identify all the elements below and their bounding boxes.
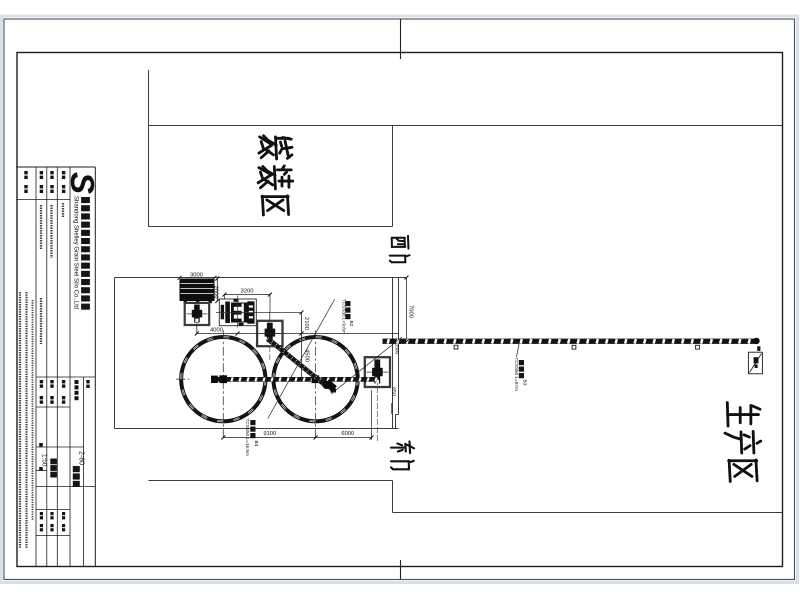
svg-text:TCSS50 L=16.5m: TCSS50 L=16.5m	[245, 419, 250, 456]
svg-text:S: S	[64, 172, 101, 194]
svg-text:TCSS50 L=57m: TCSS50 L=57m	[514, 358, 519, 392]
svg-text:650: 650	[390, 387, 396, 396]
svg-text:2-60: 2-60	[78, 451, 85, 465]
svg-text:B3: B3	[522, 380, 528, 386]
svg-text:B2: B2	[348, 321, 354, 327]
svg-text:3000: 3000	[190, 272, 203, 278]
svg-text:2000: 2000	[213, 286, 219, 299]
svg-text:1:50: 1:50	[41, 454, 48, 467]
svg-text:2100: 2100	[303, 317, 309, 330]
svg-text:7000: 7000	[408, 305, 414, 318]
svg-text:1500: 1500	[394, 344, 399, 355]
svg-text:4500: 4500	[303, 349, 309, 362]
svg-text:Shandong Shelley Grain Steel S: Shandong Shelley Grain Steel Silo Co.,Lt…	[73, 196, 79, 309]
svg-text:4000: 4000	[210, 328, 223, 334]
svg-text:9100: 9100	[263, 431, 276, 437]
svg-text:B4: B4	[253, 441, 259, 447]
svg-text:6000: 6000	[341, 431, 354, 437]
svg-text:3200: 3200	[241, 288, 254, 294]
